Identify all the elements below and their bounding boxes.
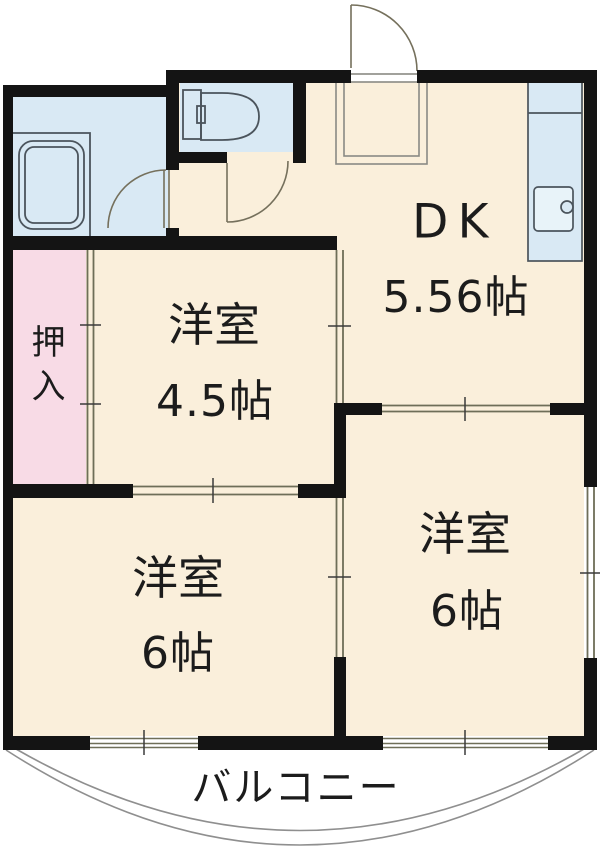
toilet-door-icon: [227, 161, 288, 222]
room-area-western-4-5: 4.5帖: [156, 380, 274, 424]
room-label-closet: 押入: [28, 324, 62, 412]
room-label-western-6-right: 洋室: [419, 511, 511, 557]
dk-west-room-partition: [328, 250, 351, 403]
wall-south-center: [198, 736, 383, 750]
closet-sliding-door: [80, 250, 101, 484]
faucet-icon: [561, 201, 573, 213]
room-label-western-6-left: 洋室: [132, 555, 224, 601]
wall-toilet-south: [166, 152, 227, 163]
room-label-balcony: バルコニー: [191, 768, 400, 808]
floor-plan: DK 5.56帖 洋室 4.5帖 洋室 6帖 洋室 6帖 押入 バルコニー: [0, 0, 600, 850]
wall-east-upper: [584, 70, 597, 487]
west-room-south-sliding-door: [133, 478, 298, 503]
wall-dk-door-jamb-east: [550, 403, 584, 415]
entrance-door-icon: [351, 5, 417, 71]
room-label-western-4-5: 洋室: [168, 302, 260, 348]
south-window-left: [90, 730, 198, 755]
wall-south-left: [3, 736, 90, 750]
washroom-door-icon: [108, 170, 169, 228]
bottom-rooms-partition: [328, 498, 351, 657]
room-area-western-6-left: 6帖: [141, 632, 215, 676]
toilet-icon: [183, 90, 259, 140]
wall-south-right: [548, 736, 597, 750]
wall-toilet-east: [293, 70, 306, 163]
room-area-dk: 5.56帖: [383, 276, 530, 320]
bathtub-icon: [13, 133, 90, 236]
room-label-dk: DK: [412, 199, 498, 246]
entry-step: [336, 74, 427, 164]
east-wall-window: [580, 487, 600, 658]
wall-west-room-south: [3, 484, 133, 498]
wall-north-left: [166, 70, 351, 83]
wall-west: [3, 85, 13, 750]
wall-west-room-jamb: [298, 484, 346, 498]
room-area-western-6-right: 6帖: [430, 590, 504, 634]
wall-north-right: [417, 70, 597, 83]
south-window-right: [383, 730, 548, 755]
kitchen-counter: [528, 82, 582, 261]
dk-south-sliding-door: [382, 397, 550, 421]
wall-dk-door-jamb-west: [346, 403, 382, 415]
wall-mid-horizontal: [3, 236, 337, 250]
wall-bath-north: [3, 85, 170, 97]
